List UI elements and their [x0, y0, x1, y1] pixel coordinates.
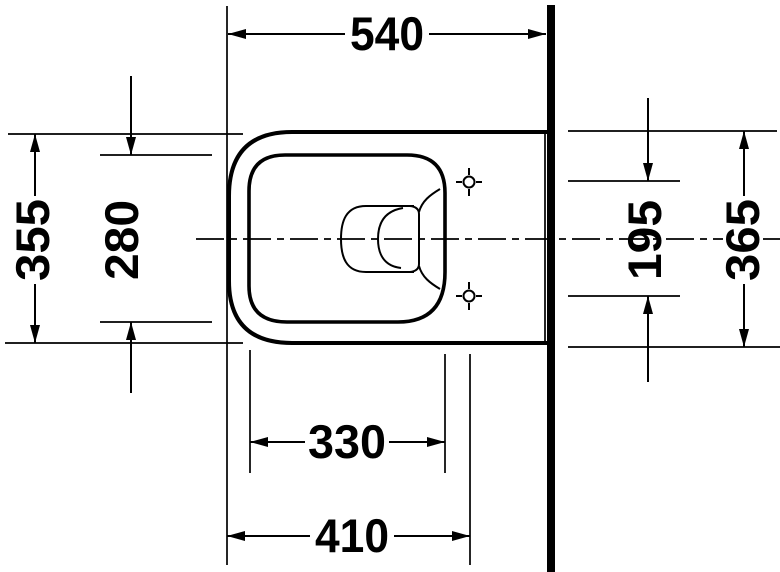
toilet-outline	[229, 132, 547, 343]
mounting-hole-marker-top	[456, 168, 482, 196]
toilet-dimension-drawing: 540 355 280 195 365 330 410	[0, 0, 780, 572]
wall-section	[547, 5, 555, 572]
extension-lines	[5, 6, 780, 565]
dimension-label-right-inner: 195	[618, 200, 671, 280]
drawing-canvas: 540 355 280 195 365 330 410	[0, 0, 780, 572]
dimension-text-masks	[13, 14, 763, 556]
dimension-label-right-outer: 365	[716, 199, 769, 281]
dimension-label-bottom-inner: 330	[308, 415, 386, 468]
mounting-hole-marker-bottom	[456, 282, 482, 310]
dimension-lines	[35, 34, 744, 536]
dimension-label-left-inner: 280	[95, 200, 148, 280]
dimension-label-bottom-outer: 410	[315, 509, 389, 562]
dimension-label-top: 540	[350, 7, 424, 60]
toilet-body-outline	[229, 132, 547, 343]
dimension-label-left-outer: 355	[6, 199, 59, 281]
